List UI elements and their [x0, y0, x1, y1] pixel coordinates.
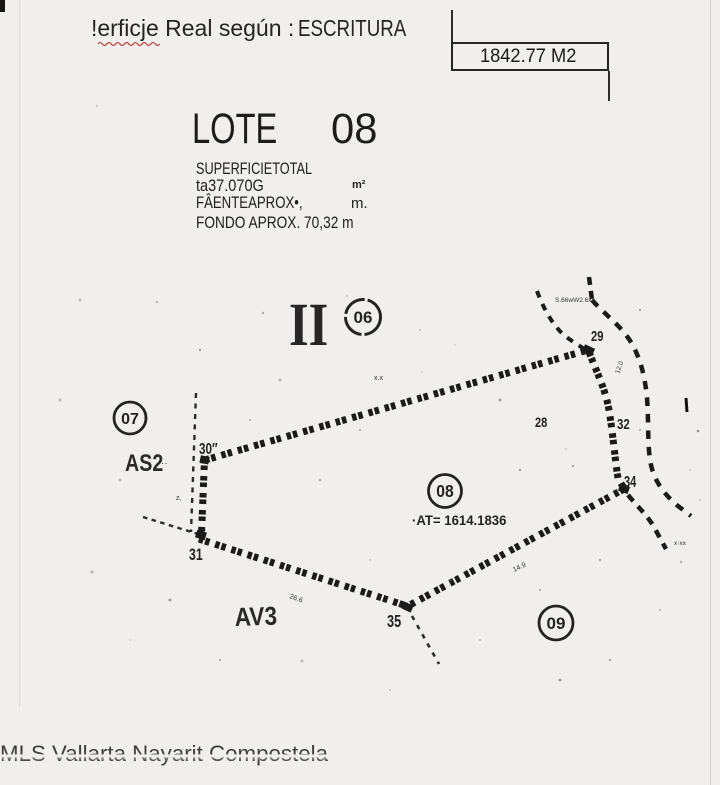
svg-text:x.x: x.x: [374, 375, 383, 382]
svg-text:26.6: 26.6: [288, 593, 303, 604]
svg-text:35: 35: [387, 612, 402, 631]
svg-text:30″: 30″: [199, 439, 218, 457]
svg-text:·AT= 1614.1836: ·AT= 1614.1836: [412, 513, 507, 528]
svg-text:z,: z,: [176, 495, 182, 502]
svg-text:S.66wW2.6xx: S.66wW2.6xx: [555, 297, 595, 304]
svg-text:14.9: 14.9: [512, 562, 527, 574]
svg-text:II: II: [289, 291, 328, 359]
svg-text:AV3: AV3: [234, 602, 277, 632]
svg-text:29: 29: [591, 328, 603, 345]
svg-text:12.0: 12.0: [614, 360, 625, 375]
svg-text:34: 34: [624, 473, 637, 490]
svg-text:x·xx: x·xx: [674, 540, 687, 547]
svg-text:··: ··: [161, 458, 168, 469]
svg-text:08: 08: [436, 481, 453, 501]
svg-text:07: 07: [121, 411, 139, 428]
svg-text:31: 31: [189, 546, 203, 564]
svg-text:09: 09: [547, 614, 566, 633]
svg-text:32: 32: [617, 416, 630, 433]
svg-text:MLS Vallarta Nayarit Compostel: MLS Vallarta Nayarit Compostela: [0, 741, 329, 766]
svg-text:AS2: AS2: [125, 449, 163, 476]
svg-text:06: 06: [354, 308, 373, 327]
svg-text:28: 28: [535, 414, 547, 431]
